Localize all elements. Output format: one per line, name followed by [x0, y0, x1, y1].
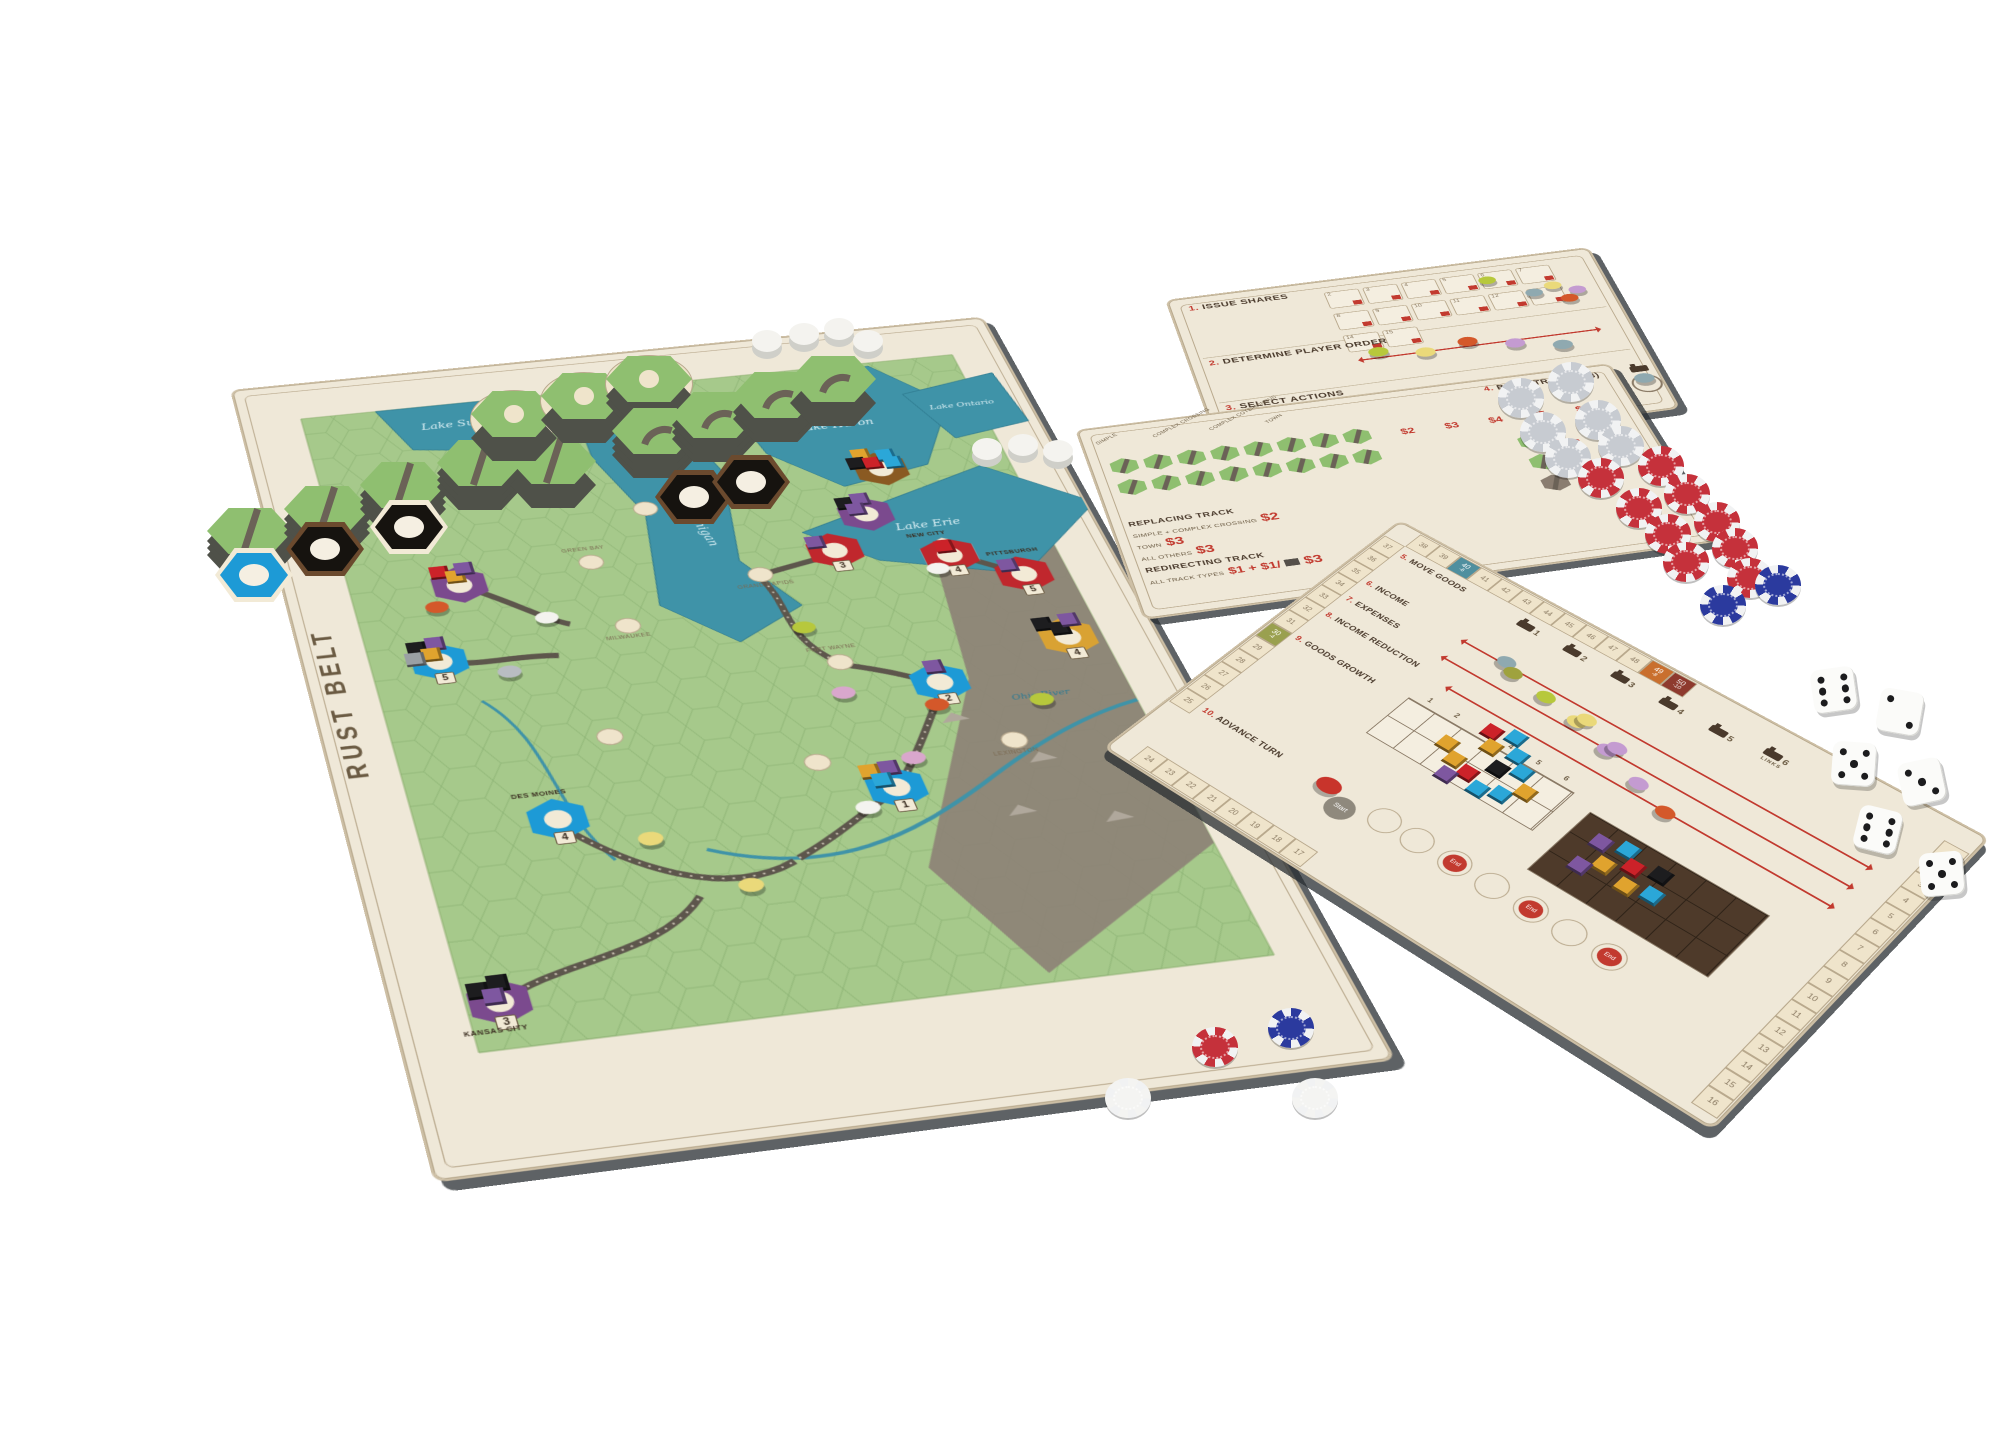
- white-chip-stack: [1548, 362, 1594, 402]
- white-disc: [824, 318, 854, 340]
- locomotive-icon: [1707, 724, 1729, 738]
- locomotive-icon: [1562, 645, 1583, 658]
- white-chip: [1105, 1078, 1151, 1118]
- white-disc: [1043, 440, 1073, 462]
- locomotive-icon: [1658, 697, 1679, 711]
- track-tile-stack-curve: [790, 356, 876, 412]
- white-disc: [752, 330, 782, 352]
- red-chip-stack: [1663, 542, 1709, 582]
- white-chip: [1292, 1078, 1338, 1118]
- blue-chip-stack: [1700, 585, 1746, 625]
- blue-chip: [1268, 1008, 1314, 1048]
- issue-shares-title: 1. ISSUE SHARES: [1188, 293, 1290, 312]
- city-kansas-city: 3 KANSAS CITY: [459, 975, 540, 1029]
- die: [1875, 687, 1926, 738]
- city-purple-west: [425, 565, 495, 606]
- locomotive-icon: [1609, 671, 1630, 684]
- die: [1809, 665, 1859, 715]
- red-chip-stack: [1578, 458, 1624, 498]
- die: [1918, 850, 1966, 898]
- city-blue-5: 5: [404, 640, 476, 683]
- die: [1896, 756, 1948, 808]
- photo-stage: RUST BELT Lake Superior Lake Michigan La…: [0, 0, 2000, 1434]
- white-disc: [1008, 434, 1038, 456]
- white-disc: [972, 438, 1002, 460]
- city-des-moines: 4 DES MOINES: [520, 795, 597, 843]
- blue-chip-stack: [1755, 565, 1801, 605]
- locomotive-icon: [1515, 619, 1536, 632]
- red-chip: [1192, 1027, 1238, 1067]
- white-disc: [789, 323, 819, 345]
- white-disc: [853, 330, 883, 352]
- player-disc: [1414, 346, 1438, 358]
- player-disc: [1551, 339, 1575, 351]
- locomotive-icon: [1629, 365, 1650, 373]
- die: [1831, 741, 1878, 788]
